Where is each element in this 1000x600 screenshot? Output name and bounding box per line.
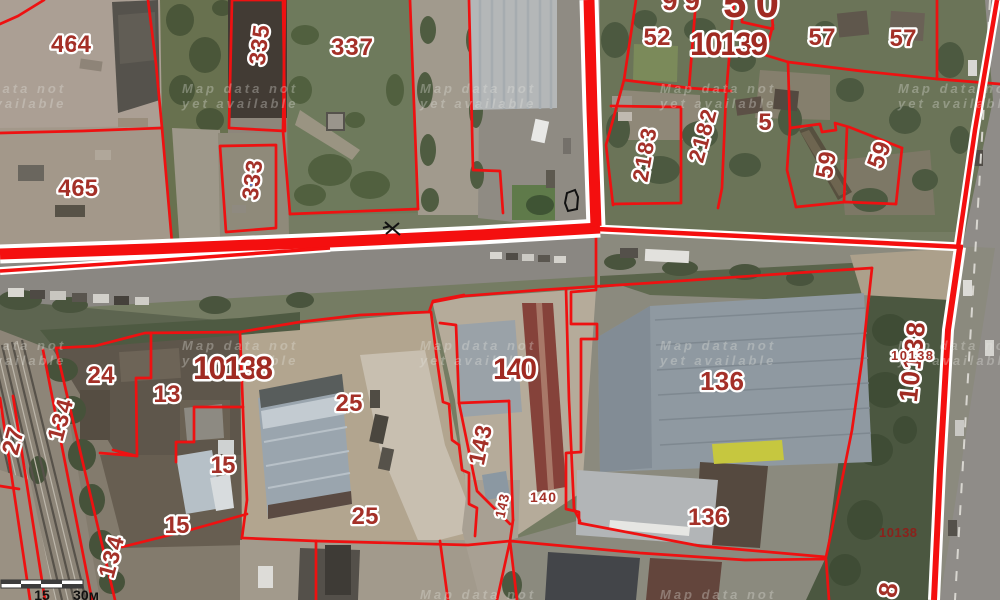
svg-text:Map data not: Map data not (0, 81, 66, 96)
svg-text:yet available: yet available (0, 353, 66, 368)
svg-text:Map data not: Map data not (420, 81, 536, 96)
svg-text:10138: 10138 (879, 525, 917, 540)
svg-text:24: 24 (88, 362, 116, 389)
svg-text:yet available: yet available (419, 96, 536, 111)
svg-text:25: 25 (336, 390, 363, 417)
svg-text:yet available: yet available (0, 96, 66, 111)
svg-text:337: 337 (331, 34, 373, 61)
svg-text:Map data not: Map data not (182, 81, 298, 96)
svg-text:464: 464 (51, 31, 92, 58)
svg-text:57: 57 (809, 24, 836, 51)
svg-text:57: 57 (890, 25, 917, 52)
svg-text:465: 465 (58, 175, 98, 202)
svg-text:Map data not: Map data not (660, 338, 776, 353)
svg-text:15: 15 (211, 452, 236, 479)
svg-text:30м: 30м (73, 587, 99, 600)
svg-text:10138: 10138 (891, 348, 933, 363)
svg-text:5: 5 (758, 109, 771, 136)
svg-text:Map data not: Map data not (0, 338, 66, 353)
svg-text:Map data not: Map data not (660, 587, 776, 600)
svg-text:Map data not: Map data not (660, 81, 776, 96)
svg-text:335: 335 (244, 23, 275, 66)
svg-text:52: 52 (644, 24, 671, 51)
svg-text:Map data not: Map data not (898, 81, 1000, 96)
svg-text:333: 333 (237, 159, 268, 202)
svg-text:15: 15 (165, 512, 190, 539)
svg-text:15: 15 (34, 587, 50, 600)
svg-text:140: 140 (493, 353, 537, 386)
svg-text:136: 136 (688, 504, 728, 531)
svg-text:Map data not: Map data not (420, 587, 536, 600)
svg-text:Map data not: Map data not (420, 338, 536, 353)
svg-text:25: 25 (352, 503, 379, 530)
svg-text:136: 136 (700, 366, 744, 396)
svg-text:yet available: yet available (181, 96, 298, 111)
svg-text:yet available: yet available (897, 96, 1000, 111)
svg-text:10139: 10139 (690, 26, 768, 62)
svg-text:59: 59 (811, 149, 842, 180)
svg-text:10138: 10138 (193, 350, 273, 386)
svg-text:140: 140 (530, 489, 556, 505)
svg-text:13: 13 (154, 381, 181, 408)
